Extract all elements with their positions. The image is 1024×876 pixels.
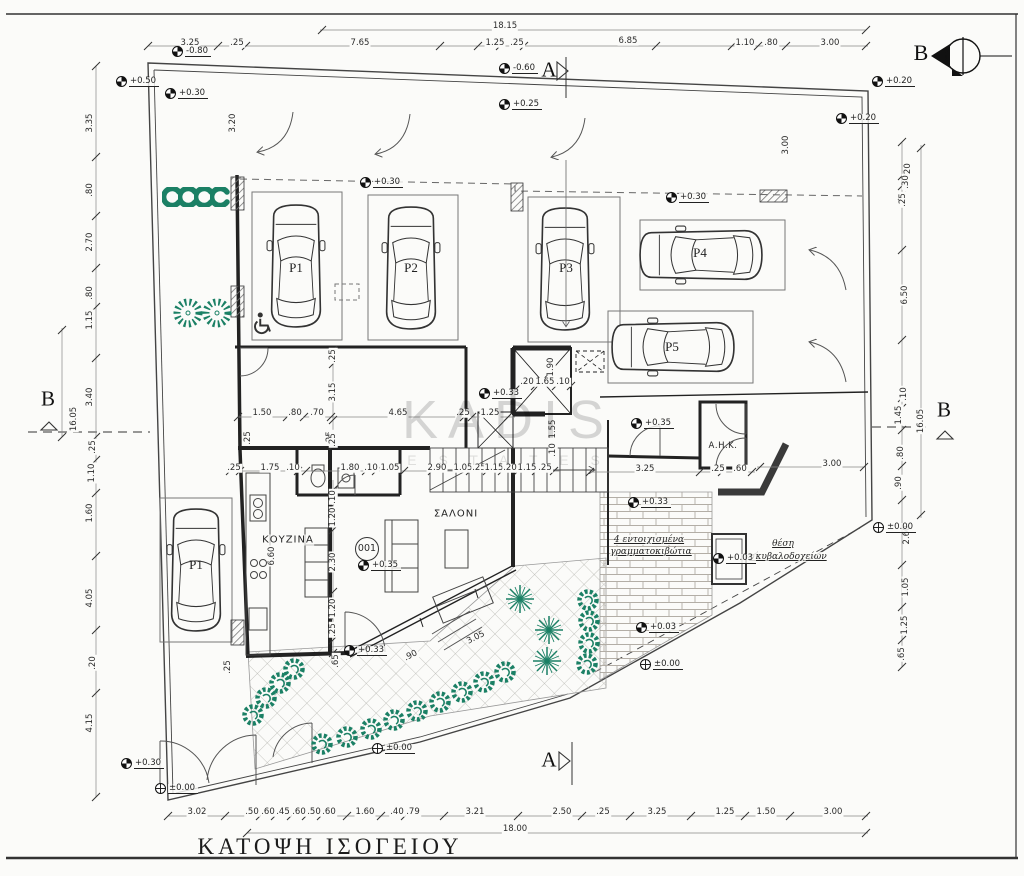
dim-label: 1.25 [715, 808, 736, 817]
note-label: σκυβαλοδοχείων [749, 552, 826, 562]
dim-label: 3.02 [187, 808, 208, 817]
level-marker-icon [666, 192, 677, 203]
dim-label: 4.15 [86, 713, 95, 734]
dim-label: .25 [329, 432, 338, 448]
spot-level: +0.35 [358, 560, 401, 571]
level-marker-icon [172, 46, 183, 57]
level-marker-icon [628, 497, 639, 508]
dim-label: 1.15 [86, 310, 95, 331]
dim-label: 18.00 [502, 825, 528, 834]
dim-label: .25 [329, 348, 338, 364]
dim-label: 1.80 [340, 464, 361, 473]
level-marker-icon [360, 177, 371, 188]
level-marker-icon [121, 758, 132, 769]
level-marker-icon [873, 522, 884, 533]
dim-label: 1.90 [547, 357, 556, 378]
dim-label: .60 [260, 808, 276, 817]
spot-level: +0.30 [666, 192, 709, 203]
level-marker-icon [836, 113, 847, 124]
dim-label: .80 [897, 445, 906, 461]
spot-level: +0.20 [872, 76, 915, 87]
spot-level: ±0.00 [155, 783, 198, 794]
dim-label: .25 [224, 659, 233, 675]
dim-label: .25 [329, 622, 338, 638]
parking-label-p2: P2 [404, 260, 418, 276]
level-marker-icon [499, 99, 510, 110]
dim-label: .25 [509, 39, 525, 48]
kitchen-counter [246, 473, 328, 655]
level-marker-icon [713, 553, 724, 564]
hedge-row [164, 189, 227, 206]
level-marker-icon [116, 76, 127, 87]
spot-level: ±0.00 [640, 659, 683, 670]
dim-label: .10 [363, 464, 379, 473]
dim-label: 3.00 [782, 135, 791, 156]
dim-label: 2.50 [552, 808, 573, 817]
kadis-watermark-sub: E S T A T E S [407, 452, 609, 468]
spot-level: ±0.00 [873, 522, 916, 533]
dim-label: 1.50 [756, 808, 777, 817]
dim-label: .65 [898, 646, 907, 662]
dim-label: 4.05 [86, 588, 95, 609]
dim-label: 2.30 [329, 552, 338, 573]
dim-label: .25 [710, 465, 726, 474]
dim-label: .50 [244, 808, 260, 817]
dim-label: 1.20 [329, 598, 338, 619]
dim-label: .45 [275, 808, 291, 817]
dim-label: .50 [306, 808, 322, 817]
dim-label: .90 [895, 475, 904, 491]
section-marker-a: A [541, 748, 556, 773]
dim-label: 18.15 [492, 22, 518, 31]
dim-label: 3.35 [86, 113, 95, 134]
parking-label-p1: P1 [189, 557, 203, 573]
spot-level: +0.33 [344, 645, 387, 656]
dim-label: .20 [519, 378, 535, 387]
dim-label: .79 [405, 808, 421, 817]
spot-level: +0.50 [116, 76, 159, 87]
dim-label: .10 [329, 489, 338, 505]
dim-label: 2.70 [86, 232, 95, 253]
level-marker-icon [631, 418, 642, 429]
dim-label: .10 [900, 386, 909, 402]
north-label: B [914, 40, 929, 66]
note-label: 4 εντοιχισμένα [614, 535, 684, 545]
section-marker-b: B [937, 398, 951, 423]
level-marker-icon [155, 783, 166, 794]
room-label: ΣΑΛΟΝΙ [434, 509, 478, 520]
dim-label: .20 [89, 655, 98, 671]
parking-label-p1: P1 [289, 260, 303, 276]
spot-level: ±0.00 [372, 743, 415, 754]
spot-level: +0.35 [631, 418, 674, 429]
dim-label: 1.60 [355, 808, 376, 817]
room-label: ΚΟΥΖΙΝΑ [262, 535, 314, 546]
spot-level: +0.33 [628, 497, 671, 508]
spot-level: +0.30 [165, 88, 208, 99]
dim-label: 6.85 [618, 37, 639, 46]
parking-label-p3: P3 [559, 260, 573, 276]
dim-label: .25 [89, 439, 98, 455]
dim-label: 1.10 [735, 39, 756, 48]
floorplan-sheet: 18.153.25.257.651.25.256.851.10.803.003.… [0, 0, 1024, 876]
north-arrow [931, 37, 1012, 76]
kadis-watermark: KADIS [402, 389, 614, 451]
dim-label: 3.25 [635, 465, 656, 474]
dim-label: .70 [309, 409, 325, 418]
level-marker-icon [344, 645, 355, 656]
dim-label: 1.75 [260, 464, 281, 473]
dim-label: 3.25 [647, 808, 668, 817]
dim-label: .10 [555, 378, 571, 387]
parking-label-p5: P5 [665, 339, 679, 355]
dim-label: .60 [291, 808, 307, 817]
dim-label: 6.50 [901, 285, 910, 306]
spot-level: +0.20 [836, 113, 879, 124]
dim-label: 1.45 [895, 405, 904, 426]
dim-label: 3.15 [329, 382, 338, 403]
dim-label: .80 [287, 409, 303, 418]
drawing-title: ΚΑΤΟΨΗ ΙΣΟΓΕΙΟΥ [197, 834, 462, 860]
level-marker-icon [499, 63, 510, 74]
dim-label: 1.20 [329, 507, 338, 528]
dim-label: 1.60 [86, 503, 95, 524]
dim-label: 16.05 [70, 406, 79, 432]
dim-label: 1.10 [88, 463, 97, 484]
roomsm-label: Α.Η.Κ. [709, 441, 738, 451]
section-marker-a: A [541, 58, 556, 83]
dim-label: 3.40 [86, 387, 95, 408]
level-marker-icon [372, 743, 383, 754]
dim-label: .65 [332, 653, 341, 669]
level-marker-icon [636, 622, 647, 633]
dim-label: 3.00 [823, 808, 844, 817]
dim-label: 16.05 [917, 408, 926, 434]
dim-label: .60 [732, 465, 748, 474]
level-marker-icon [640, 659, 651, 670]
dim-label: 1.50 [252, 409, 273, 418]
spot-level: -0.60 [499, 63, 538, 74]
flower-beds [177, 302, 228, 324]
dim-label: 3.21 [465, 808, 486, 817]
dim-label: .25 [229, 39, 245, 48]
spot-level: +0.30 [360, 177, 403, 188]
note-label: γραμματοκιβώτια [610, 547, 691, 557]
dim-label: .80 [763, 39, 779, 48]
dim-label: .80 [86, 285, 95, 301]
unit-number: 001 [355, 537, 379, 561]
spot-level: +0.25 [499, 99, 542, 110]
dim-label: .25 [244, 430, 253, 446]
dim-label: .25 [899, 192, 908, 208]
dim-label: 7.65 [350, 39, 371, 48]
spot-level: +0.03 [713, 553, 756, 564]
dim-label: 3.00 [820, 39, 841, 48]
dim-label: .80 [86, 182, 95, 198]
brick-paving [600, 492, 712, 680]
dim-label: .30 [902, 174, 911, 190]
spot-level: -0.80 [172, 46, 211, 57]
dim-label: .40 [389, 808, 405, 817]
level-marker-icon [165, 88, 176, 99]
level-marker-icon [872, 76, 883, 87]
dim-label: 3.00 [822, 460, 843, 469]
wheelchair-icon [255, 312, 270, 333]
dim-label: 1.25 [485, 39, 506, 48]
note-label: θέση [772, 539, 794, 549]
dim-label: .25 [226, 464, 242, 473]
spot-level: +0.30 [121, 758, 164, 769]
spot-level: +0.03 [636, 622, 679, 633]
level-marker-icon [358, 560, 369, 571]
dim-label: .60 [321, 808, 337, 817]
section-marker-b: B [41, 387, 55, 412]
dim-label: 1.25 [901, 615, 910, 636]
dim-label: .10 [285, 464, 301, 473]
dim-label: 3.20 [229, 113, 238, 134]
dim-label: 1.05 [902, 577, 911, 598]
dim-label: 1.65 [535, 378, 556, 387]
parking-label-p4: P4 [693, 245, 707, 261]
dim-label: 1.05 [380, 464, 401, 473]
dim-label: .25 [595, 808, 611, 817]
dim-label: 6.60 [268, 546, 277, 567]
